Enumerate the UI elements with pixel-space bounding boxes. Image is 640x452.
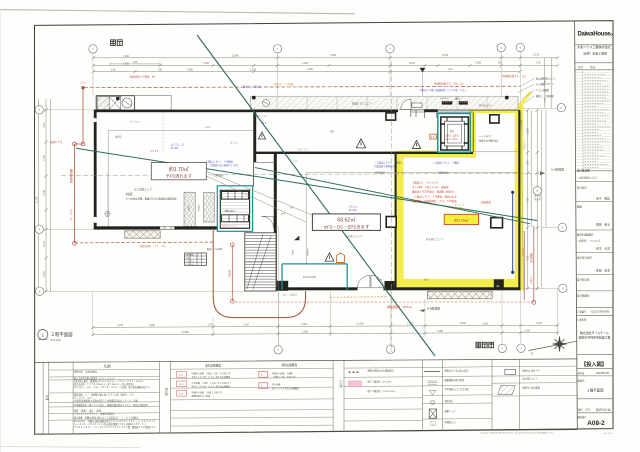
svg-text:3,640: 3,640 (307, 68, 314, 71)
svg-text:縮尺 1/O1: 縮尺 1/O1 (578, 407, 591, 411)
svg-text:5,460: 5,460 (460, 322, 467, 325)
svg-text:仕様: 仕様 (45, 395, 49, 401)
svg-text:B-B断面図: B-B断面図 (427, 307, 440, 311)
svg-text:Ｍ: Ｍ (261, 385, 263, 388)
svg-text:A-A断面図: A-A断面図 (551, 168, 564, 172)
svg-text:外壁販売線下０．５回 込）: 外壁販売線下０．５回 込） (434, 82, 465, 86)
svg-text:2,40: 2,40 (208, 324, 213, 327)
svg-text:X: X (561, 226, 563, 230)
svg-text:X: X (38, 108, 40, 112)
svg-text:1,240: 1,240 (243, 323, 250, 326)
svg-text:福田 和七: 福田 和七 (596, 223, 610, 227)
svg-text:4,550: 4,550 (187, 68, 194, 71)
svg-text:1,820: 1,820 (250, 68, 257, 71)
svg-text:消防設備機器: 消防設備機器 (281, 363, 297, 367)
svg-text:Y: Y (520, 347, 522, 351)
svg-text:高さ制限エリア: 高さ制限エリア (134, 188, 153, 192)
svg-text:PWMC: PWMC (199, 204, 201, 211)
svg-text:31: 31 (496, 284, 500, 288)
svg-text:外壁販売線下０． 込）: 外壁販売線下０． 込） (502, 74, 527, 78)
svg-text:３階から２階へ責通配管（ｼﾞﾄｿ２本）下ろし: ３階から２階へ責通配管（ｼﾞﾄｿ２本）下ろし (419, 88, 467, 92)
svg-text:【投入図】: 【投入図】 (581, 360, 607, 368)
svg-text:12,88: 12,88 (442, 54, 449, 57)
svg-text:工事番号: 工事番号 (577, 310, 587, 314)
svg-text:WMC: WMC (293, 249, 295, 255)
svg-text:Y: Y (501, 347, 503, 351)
svg-text:※FS・DS・EPSきます: ※FS・DS・EPSきます (323, 223, 370, 230)
svg-text:約3.16㎡: 約3.16㎡ (454, 218, 469, 223)
svg-text:設計者名: 設計者名 (577, 185, 588, 189)
svg-text:防水施工エリア: 防水施工エリア (426, 237, 444, 241)
svg-text:1,365: 1,365 (437, 330, 444, 333)
svg-text:X: X (39, 290, 41, 294)
svg-text:3,295: 3,295 (528, 127, 530, 133)
svg-text:バルコニー: バルコニー (524, 140, 527, 150)
svg-text:Ｍ: Ｍ (261, 374, 263, 377)
svg-text:電気設備機器: 電気設備機器 (205, 364, 221, 368)
svg-text:トイレ庁下: トイレ庁下 (479, 134, 492, 138)
svg-text:5,005: 5,005 (302, 62, 309, 65)
svg-text:3,185: 3,185 (44, 189, 46, 195)
svg-text:PL-200: PL-200 (455, 207, 464, 210)
svg-text:＃5: ＃5 (430, 135, 435, 139)
svg-text:２００×４: ２００×４ (186, 260, 194, 263)
svg-text:11,090: 11,090 (356, 323, 364, 326)
svg-text:Y: Y (92, 47, 94, 51)
svg-text:1,240: 1,240 (117, 324, 124, 327)
svg-text:1,400: 1,400 (482, 322, 489, 325)
svg-text:PL-100: PL-100 (171, 148, 179, 150)
svg-text:1,400: 1,400 (536, 322, 543, 325)
svg-text:WMC: WMC (189, 205, 191, 211)
svg-text:Ｍ４: Ｍ４ (179, 374, 183, 377)
svg-text:1,365: 1,365 (475, 62, 482, 65)
svg-text:4,300: 4,300 (301, 323, 308, 326)
svg-text:8,200: 8,200 (149, 324, 156, 327)
svg-text:11,985: 11,985 (181, 331, 189, 334)
svg-text:3,185: 3,185 (44, 154, 46, 160)
svg-text:大和ハウス工業株式会社: 大和ハウス工業株式会社 (577, 44, 611, 49)
svg-text:防水施工エリア: 防水施工エリア (345, 234, 363, 238)
svg-text:X: X (562, 287, 564, 291)
svg-text:1,330: 1,330 (123, 55, 130, 58)
svg-text:図面名: 図面名 (578, 378, 586, 382)
svg-text:後退バルコニー: 後退バルコニー (352, 100, 373, 105)
svg-text:455: 455 (498, 62, 503, 65)
svg-text:（１階はり下+２．７Ｍ確保・現状のまま）: （１階はり下+２．７Ｍ確保・現状のまま） (412, 194, 459, 198)
svg-text:S2122-GPD0090: S2122-GPD0090 (591, 311, 610, 314)
svg-text:5,100: 5,100 (44, 240, 46, 246)
svg-text:X: X (38, 228, 40, 232)
svg-text:Y: Y (277, 348, 279, 352)
svg-text:5,005: 5,005 (205, 127, 211, 129)
svg-text:1,58: 1,58 (528, 160, 530, 165)
svg-text:ピット上: ピット上 (455, 202, 466, 206)
svg-text:16.19: 16.19 (533, 54, 540, 57)
svg-text:1,88: 1,88 (133, 62, 138, 64)
svg-text:２階床ｽﾗﾄﾞ 下り１００: ２階床ｽﾗﾄﾞ 下り１００ (412, 181, 438, 185)
svg-text:ＳＬ+300 ５段上ｸﾞﾚﾔﾀｰ 要確認: ＳＬ+300 ５段上ｸﾞﾚﾔﾀｰ 要確認 (412, 185, 449, 189)
svg-text:Ｍ４: Ｍ４ (179, 393, 183, 396)
svg-text:PL-200: PL-200 (349, 209, 357, 212)
svg-text:金木 全部: 金木 全部 (596, 247, 610, 251)
svg-text:最高高さ+12900差支 要調整（検討中）: 最高高さ+12900差支 要調整（検討中） (412, 190, 456, 194)
svg-text:Y: Y (389, 47, 391, 51)
svg-text:11,165: 11,165 (37, 196, 39, 204)
svg-text:A1-#8503: A1-#8503 (604, 432, 612, 435)
svg-text:設計担当印: 設計担当印 (577, 277, 590, 281)
svg-text:PWMC: PWMC (308, 248, 310, 255)
svg-text:横断緩和界 (22.5-4): 横断緩和界 (22.5-4) (387, 305, 412, 309)
svg-text:12,880: 12,880 (231, 55, 239, 58)
svg-text:1,40: 1,40 (448, 68, 453, 71)
svg-text:約1.70㎡: 約1.70㎡ (169, 166, 189, 173)
svg-text:1,48: 1,48 (536, 62, 541, 65)
svg-text:1,66: 1,66 (111, 69, 116, 72)
svg-text:Y: Y (276, 47, 278, 51)
svg-text:（仮称）新築工事邸: （仮称）新築工事邸 (581, 50, 607, 55)
svg-text:検図: 検図 (577, 204, 583, 208)
svg-text:2023/07/05: 2023/07/05 (596, 371, 610, 375)
svg-text:外壁ｼﾀﾞ・ﾃﾞｲ等逍: 外壁ｼﾀﾞ・ﾃﾞｲ等逍 (274, 82, 294, 86)
svg-text:凡例: 凡例 (104, 363, 111, 368)
svg-text:Ｍ４: Ｍ４ (179, 383, 183, 386)
svg-text:1,365: 1,365 (524, 330, 531, 333)
svg-text:●作成: ●作成 (578, 371, 585, 375)
svg-text:X: X (536, 189, 538, 193)
svg-text:5,30: 5,30 (528, 255, 530, 260)
svg-text:２階平面図: ２階平面図 (587, 387, 605, 392)
svg-text:4,23: 4,23 (528, 197, 530, 202)
svg-text:X: X (560, 106, 562, 110)
svg-text:その他: その他 (339, 380, 343, 388)
svg-text:設計確認欄: 設計確認欄 (577, 169, 590, 173)
svg-text:区位表: 区位表 (164, 388, 168, 396)
svg-text:1,000: 1,000 (302, 331, 309, 334)
svg-text:1215×5１２１５: 1215×5１２１５ (222, 225, 237, 228)
svg-text:（４．５Ｍ）: （４．５Ｍ） (69, 208, 73, 222)
svg-text:Y: Y (500, 46, 502, 50)
svg-text:10,00: 10,00 (409, 62, 416, 65)
svg-text:2,630: 2,630 (44, 270, 46, 276)
svg-text:斜線規制 道路境界線 （２２．５Ｍ維持）: 斜線規制 道路境界線 （２２．５Ｍ維持） (412, 199, 459, 203)
svg-text:駅車 7+1200: 駅車 7+1200 (207, 247, 223, 251)
svg-text:DaiwaHouseo: DaiwaHouseo (578, 32, 614, 38)
svg-text:S=1:100: S=1:100 (51, 338, 62, 342)
svg-text:設計製図者: 設計製図者 (577, 294, 590, 298)
svg-text:テFS流れます: テFS流れます (166, 172, 192, 179)
svg-text:確認申請機関名: 確認申請機関名 (577, 233, 594, 237)
svg-text:（駄車場高さ下限め 考）: （駄車場高さ下限め 考） (128, 75, 157, 79)
svg-text:1,870: 1,870 (44, 121, 46, 127)
svg-text:雄木ｸﾞﾚ・検討済: 雄木ｸﾞﾚ・検討済 (243, 84, 262, 88)
svg-text:２階平面図: ２階平面図 (51, 331, 74, 338)
svg-text:名前: 名前 (590, 65, 596, 69)
svg-text:１８０×４: １８０×４ (186, 263, 194, 266)
svg-text:駅前町共同住宅新築工事: 駅前町共同住宅新築工事 (579, 335, 611, 340)
svg-text:68.62㎡: 68.62㎡ (337, 216, 356, 224)
svg-text:５００９: ５００９ (150, 150, 159, 153)
svg-text:Copyright(C) DAIWA HOUSE INDUS: Copyright(C) DAIWA HOUSE INDUSTRY CO.,LT… (480, 431, 553, 434)
svg-text:金田 重率: 金田 重率 (596, 269, 610, 273)
svg-text:(12.5-): (12.5-) (531, 276, 533, 283)
svg-text:共同設計者印: 共同設計者印 (577, 255, 593, 259)
svg-text:工事名称: 工事名称 (577, 317, 587, 321)
svg-text:日付: 日付 (578, 65, 584, 69)
svg-text:ﾌﾞﾗｼﾞ: ﾌﾞﾗｼﾞ (293, 160, 298, 163)
svg-text:金子 構造: 金子 構造 (596, 196, 610, 200)
svg-text:PS-DS-EPS: PS-DS-EPS (303, 276, 316, 279)
svg-text:ＨＣＩＨ５．+100: ＨＣＩＨ５．+100 (74, 397, 92, 400)
svg-text:●注意: ●注意 (126, 192, 133, 196)
svg-text:Y: Y (519, 46, 521, 50)
svg-text:製域平面Ｓ図: 製域平面Ｓ図 (596, 407, 611, 411)
svg-text:R5943: R5943 (230, 269, 232, 276)
svg-text:A08-2: A08-2 (587, 420, 605, 427)
svg-text:EPS: EPS (281, 214, 286, 216)
svg-text:7,005: 7,005 (203, 62, 210, 65)
svg-text:7,280: 7,280 (330, 54, 337, 57)
svg-text:株式会社ＲＪスチール: 株式会社ＲＪスチール (580, 330, 609, 335)
svg-text:道路斜線制限: 道路斜線制限 (69, 168, 73, 183)
svg-text:910: 910 (158, 69, 163, 72)
